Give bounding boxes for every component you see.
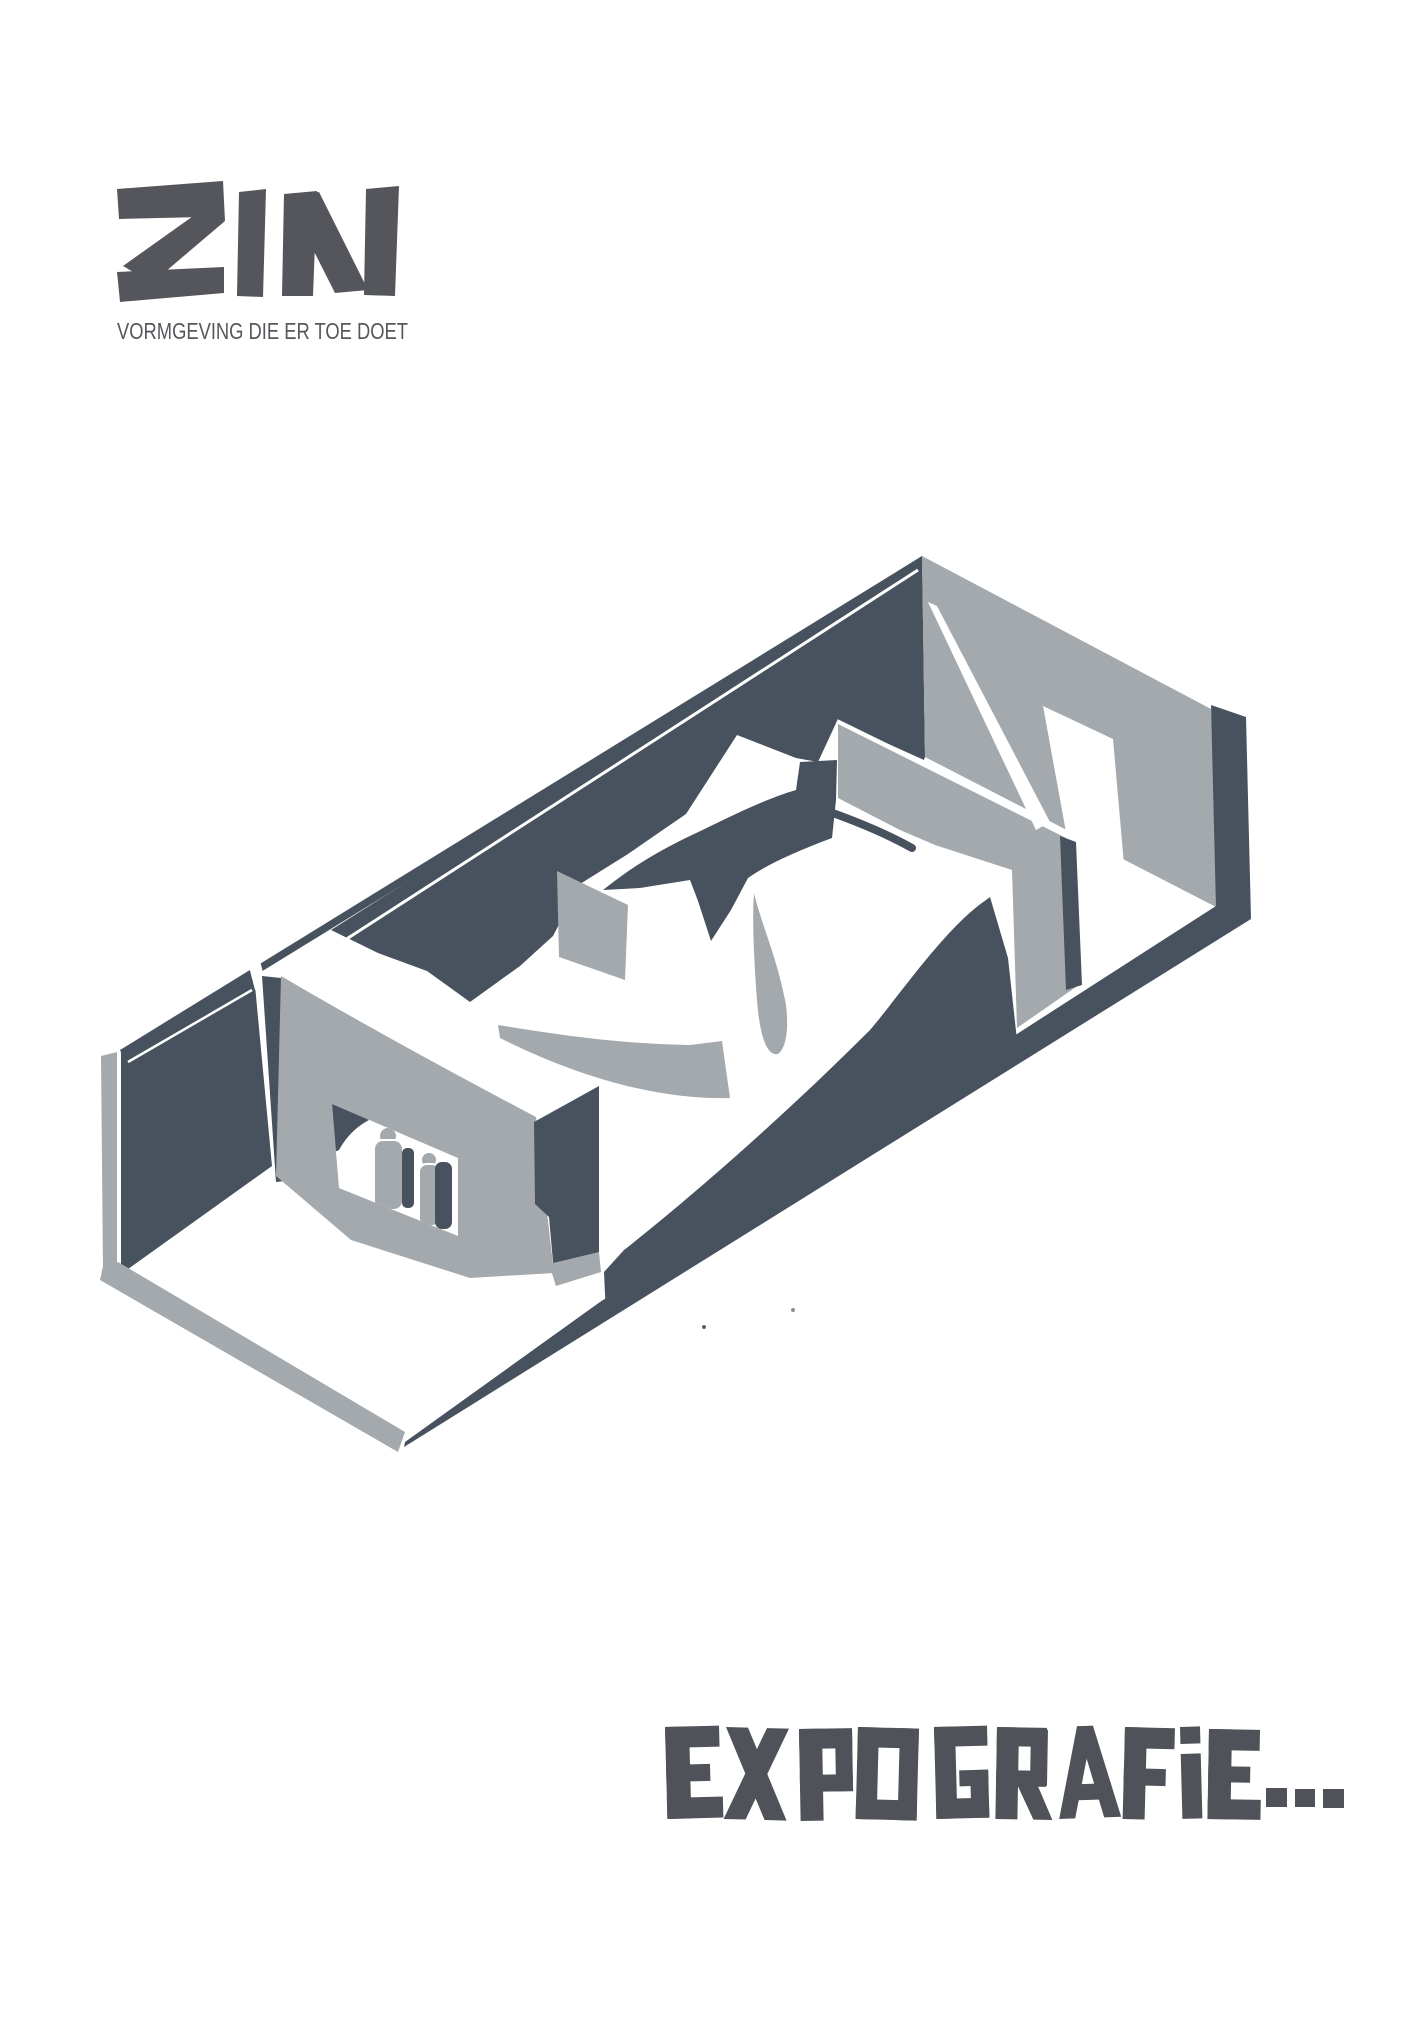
svg-text:VORMGEVING DIE ER TOE DOET: VORMGEVING DIE ER TOE DOET (117, 318, 408, 344)
